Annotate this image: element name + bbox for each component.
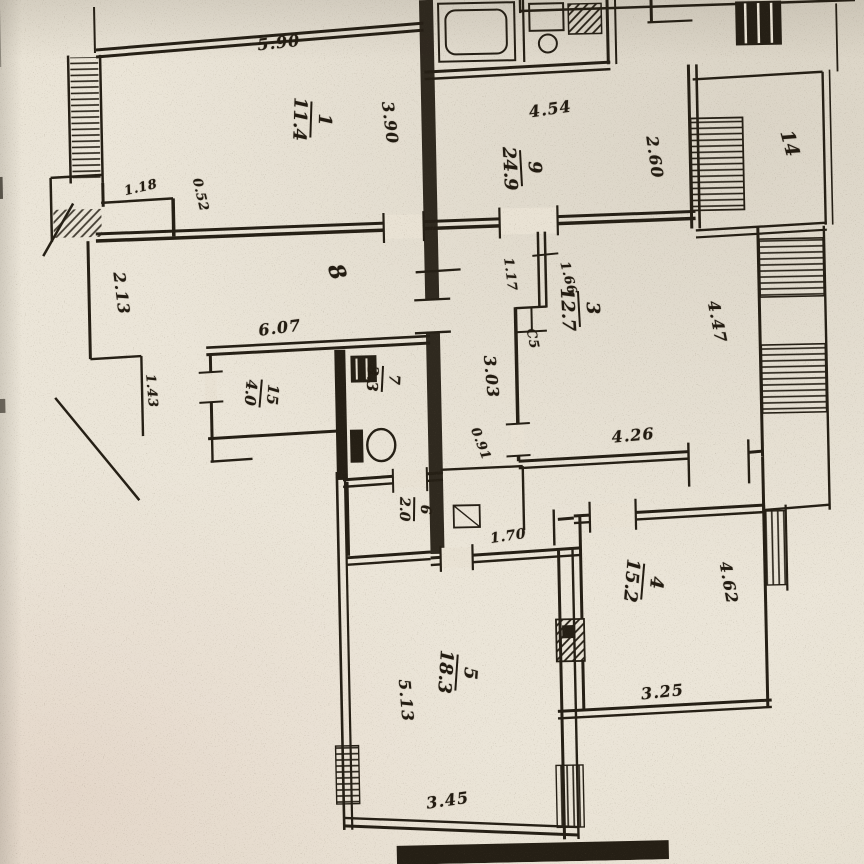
room-3-door-opening: [506, 423, 531, 456]
door-opening-room-1: [383, 211, 424, 243]
room-6-door-opening: [393, 467, 428, 493]
room-15-door-opening: [199, 371, 224, 402]
room-area: 24.9: [499, 146, 519, 191]
room-label-9: 9 24.9: [499, 145, 544, 191]
room-label-7: 7 3.3: [364, 365, 402, 393]
dimension-3-90: 3.90: [379, 101, 400, 146]
dimension-2-13: 2.13: [110, 271, 131, 316]
bottom-exterior-wall-strip: [397, 840, 669, 864]
room-label-5: 5 18.3: [434, 649, 480, 696]
room-area: 4.0: [242, 379, 259, 406]
room-5-window-hatch-left: [336, 746, 360, 804]
loggia-window-hatch: [690, 117, 744, 210]
dimension-4-26: 4.26: [611, 426, 655, 446]
door-opening-room-9: [499, 205, 558, 238]
room-area: 15.2: [620, 558, 642, 603]
dimension-1-17: 1.17: [501, 257, 518, 292]
scanned-floor-plan-page: 1 11.4 9 24.9 3 12.7 4 15.2 5 18.3 15 4.…: [0, 0, 864, 864]
room-number: 6: [418, 505, 432, 515]
room-area: 3.3: [364, 365, 380, 392]
room-number: 4: [646, 576, 665, 590]
room-label-15: 15 4.0: [242, 378, 281, 409]
room-number: 15: [264, 383, 281, 405]
room-area: 18.3: [434, 649, 455, 694]
room-label-1: 1 11.4: [289, 97, 333, 142]
scan-edge-artifacts: [0, 9, 9, 413]
room-4-door-opening: [589, 499, 636, 533]
loggia-number-label: 14: [776, 128, 801, 159]
entry-step-hatch: [53, 209, 102, 238]
room-number: 3: [583, 301, 602, 315]
hall-fixture-icon: [454, 505, 480, 528]
room-number: 7: [386, 374, 401, 385]
dimension-1-43: 1.43: [143, 374, 159, 409]
room-3-window-hatch-lower: [761, 344, 826, 413]
bathtub-icon: [438, 2, 515, 62]
dimension-3-03: 3.03: [481, 355, 501, 399]
room-label-6: 6 2.0: [397, 497, 432, 522]
bathroom-duct-hatch: [568, 3, 602, 34]
room-number: 5: [460, 667, 479, 681]
fraction-bar: [413, 497, 415, 521]
room-1-window-hatch: [70, 57, 101, 182]
bathroom-walls: [423, 0, 694, 79]
floor-plan-drawing: 1 11.4 9 24.9 3 12.7 4 15.2 5 18.3 15 4.…: [0, 0, 864, 864]
room-5-window-hatch-right: [556, 765, 584, 828]
room-4-window-hatch: [765, 511, 788, 585]
dimension-5-90: 5.90: [257, 33, 301, 54]
dimension-3-25: 3.25: [640, 682, 684, 703]
fraction-bar: [310, 101, 313, 137]
room-area: 2.0: [397, 497, 411, 522]
room-15-7-divider-wall: [334, 350, 348, 480]
toilet-icon: [350, 429, 396, 463]
unclear-annotation: С5: [524, 328, 541, 351]
floor-plan-linework: [0, 0, 864, 864]
room-3-window-hatch-upper: [759, 238, 824, 297]
loggia-corner-wall-block: [735, 1, 782, 46]
dimension-5-13: 5.13: [396, 678, 416, 722]
room-area: 11.4: [289, 97, 308, 141]
room-number: 1: [315, 113, 333, 126]
dimension-2-60: 2.60: [643, 135, 665, 180]
room-label-4: 4 15.2: [620, 558, 667, 605]
room-number: 9: [525, 161, 544, 175]
room-5-door-opening: [440, 544, 473, 572]
